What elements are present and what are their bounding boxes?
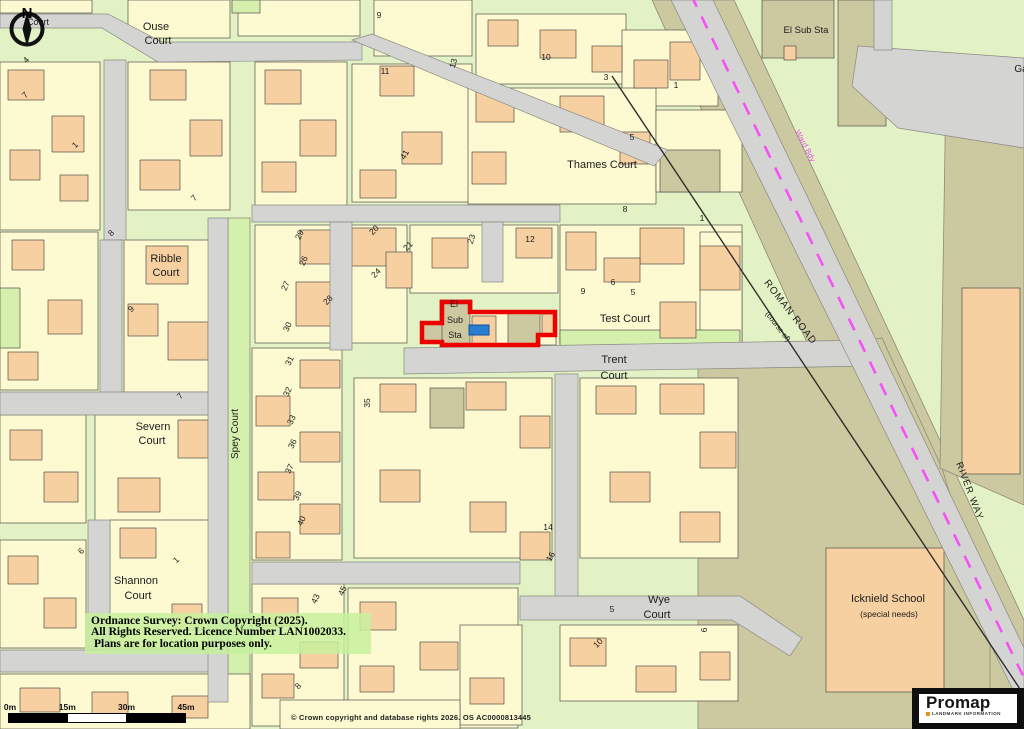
map-label: El: [450, 299, 458, 309]
scale-label-0: 0m: [4, 702, 16, 712]
building: [700, 652, 730, 680]
building: [12, 240, 44, 270]
house-number: 11: [381, 66, 390, 76]
house-number: 5: [610, 604, 615, 614]
scale-segment-black: [9, 714, 68, 722]
building: [256, 532, 290, 558]
map-label: Court: [125, 590, 152, 602]
building: [44, 472, 78, 502]
map-label: Wye: [648, 594, 670, 606]
map-label: Sub: [447, 315, 463, 325]
map-label: Shannon: [114, 575, 158, 587]
building: [472, 152, 506, 184]
building: [150, 70, 186, 100]
building: [190, 120, 222, 156]
road: [482, 222, 503, 282]
compound: [508, 312, 540, 345]
building: [258, 472, 294, 500]
map-label: Court: [145, 35, 172, 47]
map-label: Court: [601, 370, 628, 382]
north-arrow: N: [4, 2, 50, 52]
road: [100, 240, 122, 394]
building: [380, 470, 420, 502]
house-number: 5: [631, 287, 636, 297]
map-label: Ribble: [150, 253, 181, 265]
house-number: 1: [700, 213, 705, 223]
building: [262, 162, 296, 192]
copyright-box: Ordnance Survey: Crown Copyright (2025).…: [85, 613, 371, 654]
promap-logo: Promap LANDMARK INFORMATION: [912, 688, 1024, 729]
building: [265, 70, 301, 104]
road: [555, 374, 578, 598]
scale-label-30: 30m: [118, 702, 135, 712]
road: [330, 222, 352, 350]
map-label: Icknield School: [851, 593, 925, 605]
scale-bar: 0m 15m 30m 45m: [8, 702, 186, 723]
road: [104, 60, 126, 240]
copyright-line-3: Plans are for location purposes only.: [91, 639, 366, 650]
scale-segment-white: [68, 714, 127, 722]
building: [466, 382, 506, 410]
house-number: 6: [699, 627, 709, 632]
os-attribution: © Crown copyright and database rights 20…: [291, 713, 531, 722]
building: [168, 322, 208, 360]
building: [380, 384, 416, 412]
building: [700, 246, 740, 290]
promap-logo-card: Promap LANDMARK INFORMATION: [919, 694, 1017, 723]
building: [610, 472, 650, 502]
map-label: Test Court: [600, 313, 650, 325]
building: [634, 60, 668, 88]
building: [784, 46, 796, 60]
building: [300, 360, 340, 388]
road: [252, 562, 520, 584]
scale-segment-black: [126, 714, 185, 722]
promap-wordmark: Promap: [926, 694, 1017, 712]
map-label: Severn: [136, 421, 171, 433]
house-number: 1: [674, 80, 679, 90]
house-number: 9: [377, 10, 382, 20]
house-number: 12: [525, 234, 535, 244]
building: [680, 512, 720, 542]
building: [596, 386, 636, 414]
building: [386, 252, 412, 288]
map-label: Trent: [601, 354, 626, 366]
compound: [430, 388, 464, 428]
map-label: Thames Court: [567, 159, 637, 171]
map-label: Court: [153, 267, 180, 279]
building: [10, 150, 40, 180]
map-label: Court: [644, 609, 671, 621]
house-number: 5: [630, 132, 635, 142]
promap-dot-icon: [926, 712, 930, 716]
promap-tagline: LANDMARK INFORMATION: [932, 711, 1001, 716]
road: [874, 0, 892, 50]
map-label: (special needs): [860, 609, 918, 619]
house-number: 9: [581, 286, 586, 296]
map-label: Sta: [448, 330, 462, 340]
scale-bar-segments: [8, 713, 186, 723]
building: [826, 548, 944, 692]
building: [10, 430, 42, 460]
map-label: Ouse: [143, 21, 169, 33]
green-space: [232, 0, 260, 13]
building: [420, 642, 458, 670]
building: [640, 228, 684, 264]
building: [962, 288, 1020, 474]
building: [660, 384, 704, 414]
building: [402, 132, 442, 164]
road: [252, 205, 560, 222]
building: [636, 666, 676, 692]
scale-label-45: 45m: [177, 702, 194, 712]
map-stage: CourtOuseCourtRibbleCourtThames CourtTes…: [0, 0, 1024, 729]
house-number: 3: [604, 72, 609, 82]
map-label: El Sub Sta: [784, 25, 830, 36]
building: [300, 432, 340, 462]
building: [520, 416, 550, 448]
building: [360, 170, 396, 198]
building: [262, 674, 294, 698]
building: [700, 432, 736, 468]
building: [8, 556, 38, 584]
map-label: Ga: [1014, 64, 1024, 75]
scale-labels: 0m 15m 30m 45m: [8, 702, 186, 713]
building: [178, 420, 208, 458]
promap-tagline-row: LANDMARK INFORMATION: [926, 711, 1017, 716]
building: [470, 502, 506, 532]
building: [60, 175, 88, 201]
building: [432, 238, 468, 268]
building: [120, 528, 156, 558]
building: [118, 478, 160, 512]
house-number: 35: [362, 398, 372, 408]
building: [470, 678, 504, 704]
building: [592, 46, 622, 72]
plot-marker: [469, 325, 489, 335]
building: [488, 20, 518, 46]
map-label: Court: [139, 435, 166, 447]
house-number: 8: [623, 204, 628, 214]
building: [8, 352, 38, 380]
house-number: 6: [611, 277, 616, 287]
building: [140, 160, 180, 190]
building: [48, 300, 82, 334]
building: [604, 258, 640, 282]
house-number: 10: [541, 52, 551, 62]
parcel: [460, 625, 522, 725]
building: [566, 232, 596, 270]
map-label: Spey Court: [230, 409, 241, 459]
compound: [660, 150, 720, 192]
building: [360, 666, 394, 692]
scale-label-15: 15m: [59, 702, 76, 712]
north-label: N: [22, 5, 33, 22]
building: [660, 302, 696, 338]
building: [44, 598, 76, 628]
green-space: [0, 288, 20, 348]
building: [300, 120, 336, 156]
house-number: 14: [543, 522, 553, 532]
